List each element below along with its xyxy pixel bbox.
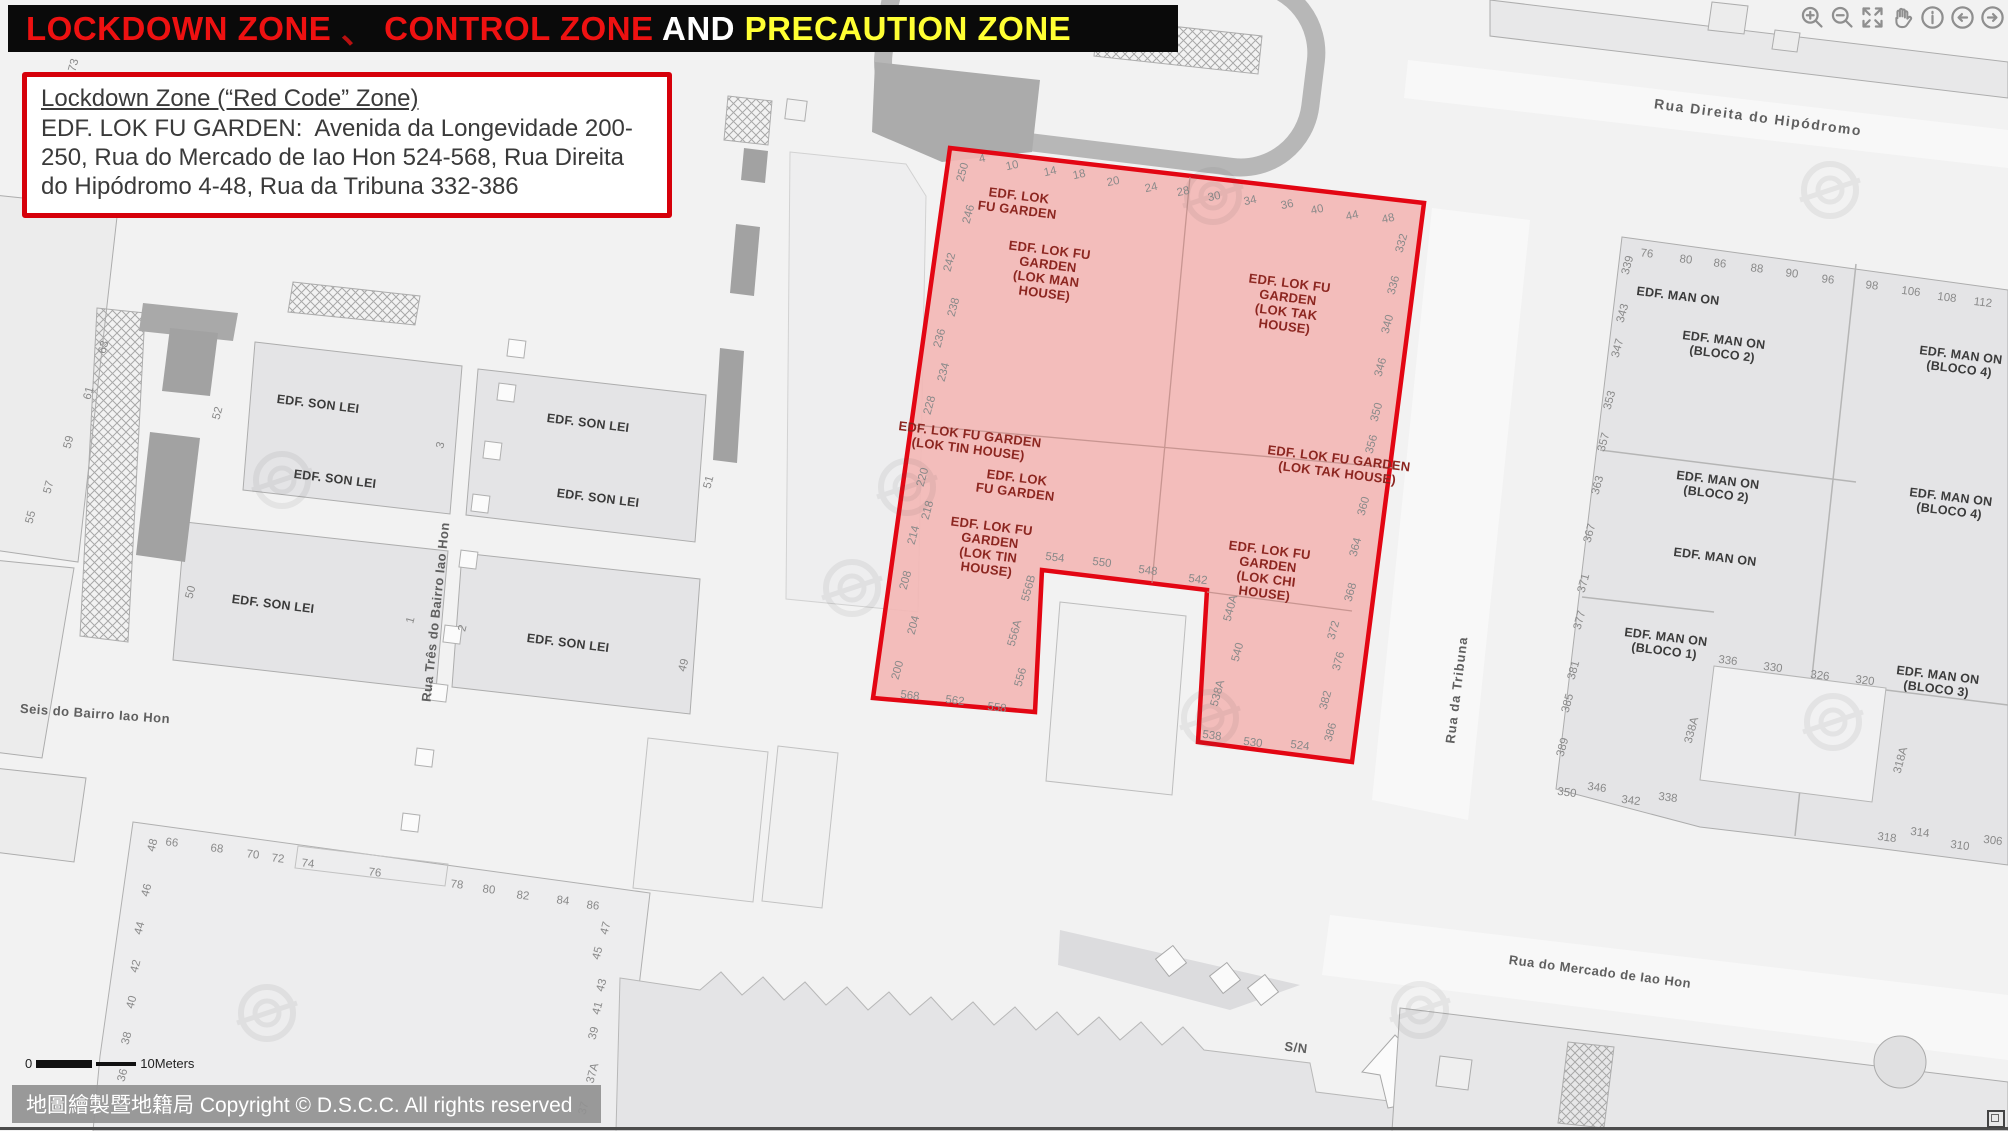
map-border-line	[0, 1127, 2008, 1130]
street-label: S/N	[1284, 1039, 1309, 1057]
house-number: 68	[210, 842, 224, 855]
house-number: 338	[1658, 791, 1679, 805]
house-number: 320	[1855, 674, 1876, 688]
forward-icon[interactable]	[1979, 4, 2006, 31]
house-number: 330	[1763, 661, 1784, 675]
house-number: 548	[1138, 564, 1159, 578]
house-number: 84	[556, 894, 571, 908]
scale-bar: 0 10Meters	[25, 1056, 194, 1071]
house-number: 310	[1950, 839, 1971, 853]
house-number: 318	[1877, 831, 1898, 845]
scale-bar-segment	[96, 1062, 136, 1066]
title-segment: AND	[654, 10, 745, 48]
house-number: 350	[1557, 786, 1578, 800]
map-toolbar	[1799, 4, 2006, 31]
house-number: 78	[450, 878, 464, 891]
house-number: 558	[987, 701, 1008, 715]
full-extent-icon[interactable]	[1859, 4, 1886, 31]
back-icon[interactable]	[1949, 4, 1976, 31]
info-box-heading: Lockdown Zone (“Red Code” Zone)	[41, 85, 649, 113]
scale-bar-segment	[36, 1060, 92, 1068]
pan-icon[interactable]	[1889, 4, 1916, 31]
lockdown-info-box: Lockdown Zone (“Red Code” Zone) EDF. LOK…	[22, 72, 672, 218]
house-number: 70	[246, 848, 260, 861]
title-bar: LOCKDOWN ZONE 、 CONTROL ZONE AND PRECAUT…	[8, 5, 1178, 52]
zoom-out-icon[interactable]	[1829, 4, 1856, 31]
house-number: 80	[1679, 253, 1693, 266]
title-segment: CONTROL ZONE	[384, 10, 653, 48]
title-segment: LOCKDOWN ZONE	[26, 10, 331, 48]
house-number: 88	[1750, 262, 1764, 275]
scale-distance-label: 10Meters	[140, 1056, 194, 1071]
house-number: 86	[1713, 257, 1727, 270]
title-segment: PRECAUTION ZONE	[745, 10, 1072, 48]
house-number: 82	[516, 889, 530, 902]
house-number: 90	[1785, 267, 1799, 280]
zoom-in-icon[interactable]	[1799, 4, 1826, 31]
title-segment: 、	[331, 5, 384, 53]
house-number: 342	[1621, 794, 1642, 808]
house-number: 326	[1810, 669, 1831, 683]
window-resize-icon[interactable]	[1987, 1110, 2005, 1128]
house-number: 66	[165, 836, 179, 849]
house-number: 314	[1910, 826, 1931, 840]
house-number: 346	[1587, 781, 1608, 795]
house-number: 76	[1640, 247, 1654, 260]
house-number: 74	[301, 857, 316, 871]
house-number: 568	[900, 689, 921, 703]
house-number: 76	[368, 866, 382, 879]
house-number: 86	[586, 899, 600, 912]
house-number: 542	[1188, 573, 1209, 587]
house-number: 550	[1092, 556, 1113, 570]
house-number: 554	[1045, 551, 1066, 565]
house-number: 306	[1983, 834, 2004, 848]
copyright-bar: 地圖繪製暨地籍局 Copyright © D.S.C.C. All rights…	[12, 1085, 601, 1123]
info-icon[interactable]	[1919, 4, 1946, 31]
scale-zero-label: 0	[25, 1056, 32, 1071]
house-number: 80	[482, 883, 496, 896]
house-number: 336	[1718, 654, 1739, 668]
house-number: 530	[1243, 736, 1264, 750]
info-box-body: EDF. LOK FU GARDEN: Avenida da Longevida…	[41, 115, 649, 201]
house-number: 524	[1290, 739, 1311, 753]
house-number: 98	[1865, 279, 1879, 292]
house-number: 72	[271, 852, 285, 865]
house-number: 96	[1821, 273, 1835, 286]
house-number: 112	[1973, 296, 1993, 310]
house-number: 108	[1937, 291, 1958, 305]
house-number: 562	[945, 694, 966, 708]
house-number: 106	[1901, 285, 1922, 299]
